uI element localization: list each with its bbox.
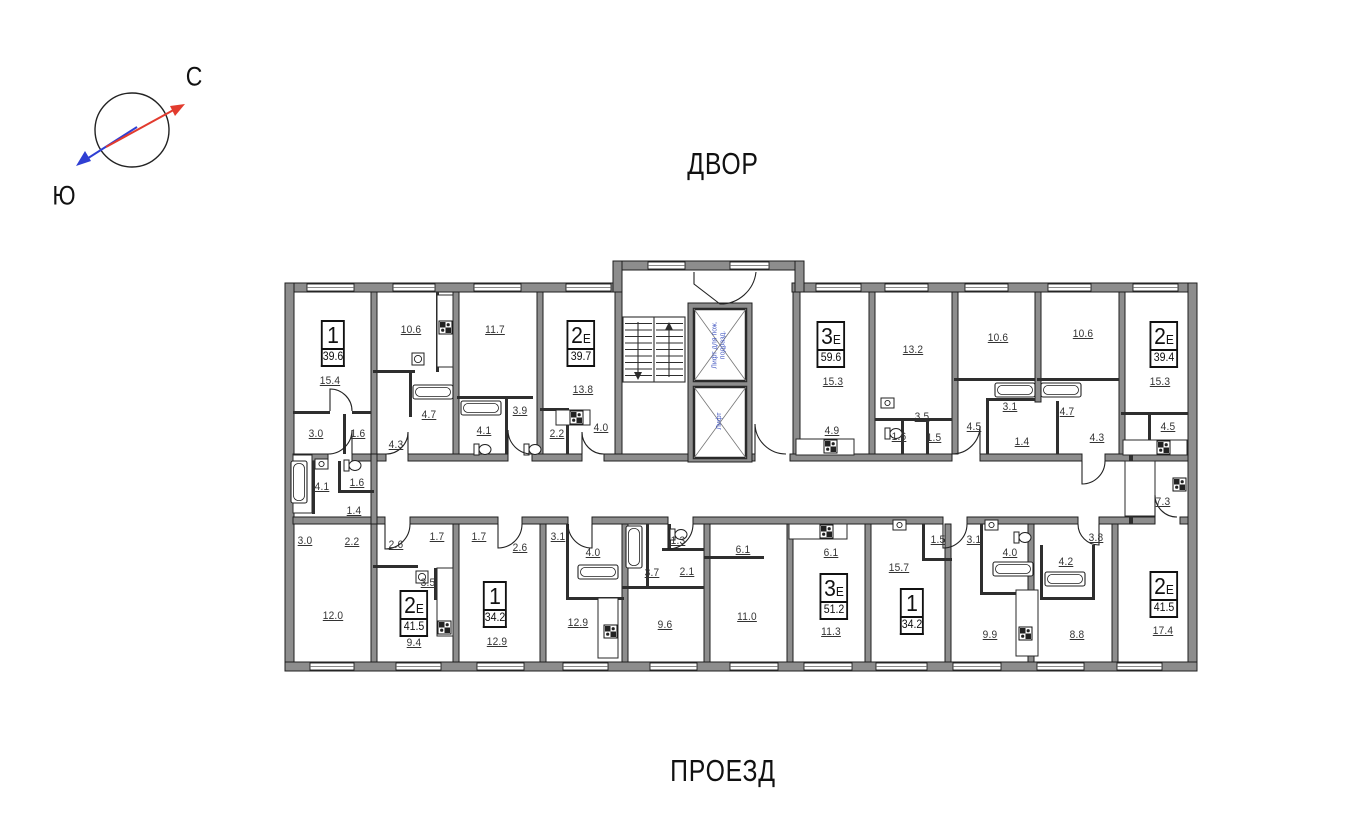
room-area-label: 1.7 [472,531,487,543]
apartment-badge: 2Е39.4 [1148,321,1179,368]
apartment-type: 1 [900,588,924,618]
room-area-label: 3.7 [645,567,660,579]
room-area-label: 15.3 [823,376,843,388]
room-area-label: 2.1 [680,566,695,578]
compass-icon [76,93,185,167]
apartment-type-suffix: Е [836,584,844,599]
room-area-label: 4.3 [389,439,404,451]
room-area-label: 13.8 [573,384,593,396]
floorplan-drawing [0,0,1345,816]
room-area-label: 6.1 [824,547,839,559]
room-area-label: 9.9 [983,629,998,641]
floorplan-page: С Ю ДВОР ПРОЕЗД Лифт для пож. подразд. Л… [0,0,1345,816]
room-area-label: 3.0 [298,535,313,547]
apartment-badge: 139.6 [320,320,346,367]
room-area-label: 12.9 [487,636,507,648]
apartment-type: 2Е [400,590,429,620]
apartment-total-area: 41.5 [1150,601,1179,618]
room-area-label: 6.1 [736,544,751,556]
room-area-label: 2.6 [513,542,528,554]
corridor-walls [293,454,1188,524]
room-area-label: 11.3 [821,626,841,638]
room-area-label: 3.5 [915,411,930,423]
stove-icons [438,321,1186,640]
room-area-label: 3.1 [551,531,566,543]
room-area-label: 7.3 [1156,496,1171,508]
room-area-label: 4.9 [825,425,840,437]
room-area-label: 1.4 [1015,436,1030,448]
room-area-label: 12.9 [568,617,588,629]
room-area-label: 15.4 [320,375,340,387]
compass-south-label: Ю [52,181,75,212]
room-area-label: 4.0 [594,422,609,434]
room-area-label: 4.2 [1059,556,1074,568]
room-area-label: 4.1 [315,481,330,493]
room-area-label: 3.1 [967,534,982,546]
room-area-label: 4.5 [1161,421,1176,433]
room-area-label: 4.1 [477,425,492,437]
room-area-label: 15.7 [889,562,909,574]
apartment-badge: 2Е41.5 [398,590,429,637]
apartment-type: 2Е [1150,321,1179,351]
apartment-type-suffix: Е [583,331,591,346]
room-area-label: 3.8 [1089,532,1104,544]
courtyard-label: ДВОР [687,146,759,182]
apartment-total-area: 39.6 [321,350,345,367]
room-area-label: 4.7 [422,409,437,421]
elevator-label: Лифт [716,388,724,454]
apartment-badge: 2Е41.5 [1148,571,1179,618]
room-area-label: 1.6 [350,477,365,489]
apartment-badge: 134.2 [482,581,508,628]
apartment-badge: 2Е39.7 [565,320,596,367]
room-area-label: 4.5 [967,421,982,433]
apartment-total-area: 39.4 [1150,351,1179,368]
room-area-label: 9.6 [658,619,673,631]
room-area-label: 11.0 [737,611,757,623]
room-area-label: 2.6 [389,539,404,551]
room-area-label: 4.0 [586,547,601,559]
driveway-label: ПРОЕЗД [670,753,776,789]
fire-elevator-label: Лифт для пож. подразд. [712,312,729,378]
room-area-label: 9.4 [407,637,422,649]
apartment-total-area: 41.5 [400,620,429,637]
apartment-total-area: 51.2 [820,603,849,620]
room-area-label: 4.3 [1090,432,1105,444]
apartment-total-area: 59.6 [817,351,846,368]
apartment-type-suffix: Е [416,601,424,616]
room-area-label: 8.8 [1070,629,1085,641]
room-area-label: 1.6 [351,428,366,440]
apartment-total-area: 39.7 [567,350,596,367]
apartment-badge: 134.2 [899,588,925,635]
apartment-badge: 3Е51.2 [818,573,849,620]
apartment-type: 3Е [820,573,849,603]
apartment-type-suffix: Е [833,332,841,347]
room-area-label: 1.5 [931,534,946,546]
room-area-label: 2.2 [345,536,360,548]
room-area-label: 12.0 [323,610,343,622]
room-area-label: 3.1 [1003,401,1018,413]
room-area-label: 3.0 [309,428,324,440]
apartment-total-area: 34.2 [483,611,507,628]
apartment-type: 2Е [1150,571,1179,601]
apartment-type: 1 [321,320,345,350]
room-area-label: 13.2 [903,344,923,356]
room-area-label: 3.9 [513,405,528,417]
room-area-label: 10.6 [401,324,421,336]
compass-north-label: С [186,62,203,93]
room-area-label: 1.5 [927,432,942,444]
sink-icons [315,398,998,530]
room-area-label: 1.4 [347,505,362,517]
room-area-label: 2.2 [550,428,565,440]
apartment-total-area: 34.2 [900,618,924,635]
apartment-type: 1 [483,581,507,611]
apartment-badge: 3Е59.6 [815,321,846,368]
apartment-type: 3Е [817,321,846,351]
apartment-type: 2Е [567,320,596,350]
room-area-label: 10.6 [988,332,1008,344]
room-area-label: 1.7 [430,531,445,543]
room-area-label: 15.3 [1150,376,1170,388]
room-area-label: 10.6 [1073,328,1093,340]
apartment-type-suffix: Е [1166,332,1174,347]
room-area-label: 1.3 [671,535,686,547]
apartment-type-suffix: Е [1166,582,1174,597]
room-area-label: 17.4 [1153,625,1173,637]
stairs-icon [623,317,685,382]
room-area-label: 4.7 [1060,406,1075,418]
room-area-label: 3.5 [421,577,436,589]
room-area-label: 1.6 [892,431,907,443]
room-area-label: 4.0 [1003,547,1018,559]
room-area-label: 11.7 [485,324,505,336]
